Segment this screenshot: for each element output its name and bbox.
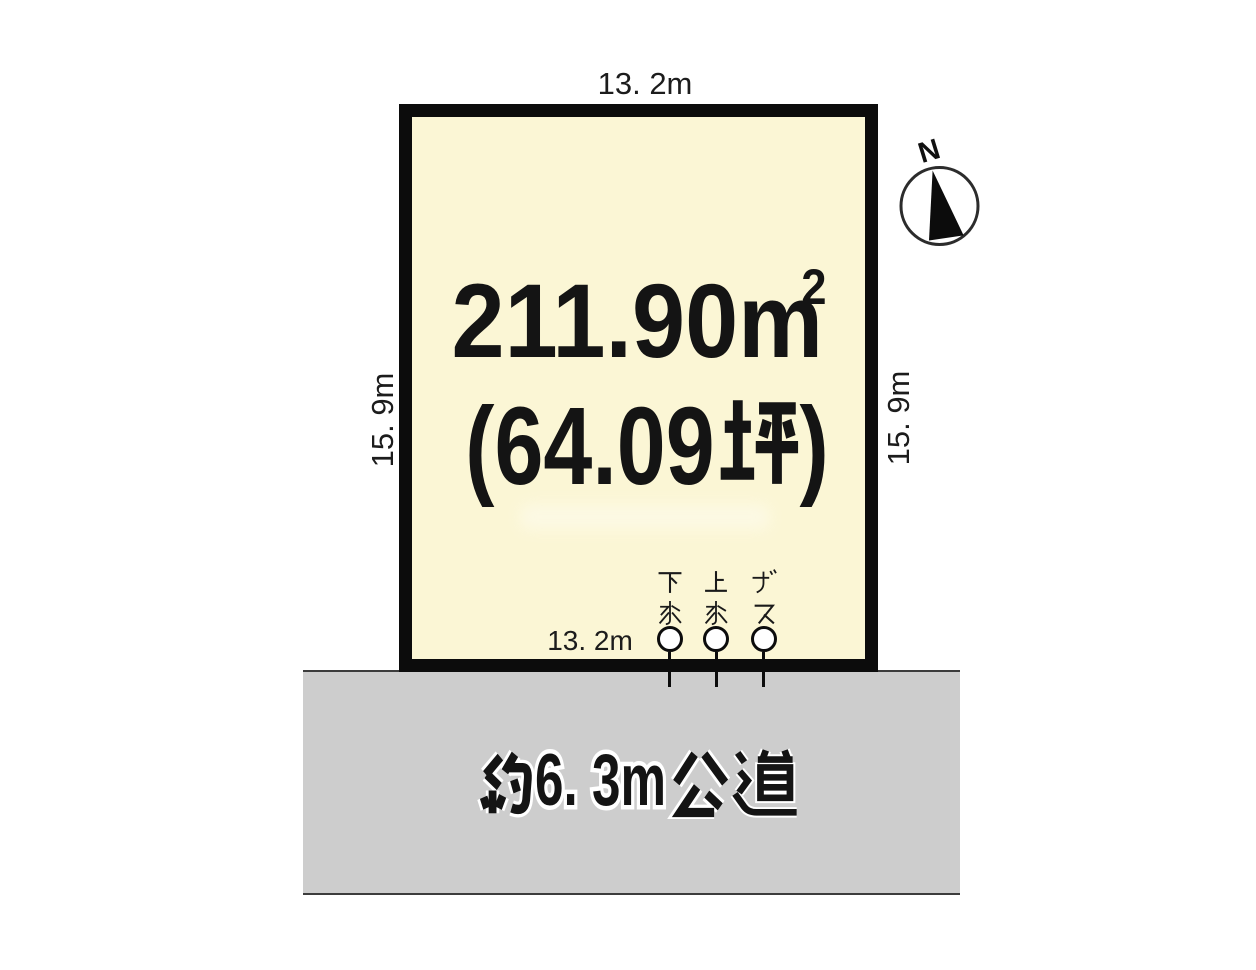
svg-text:N: N — [915, 133, 944, 170]
svg-text:6. 3m: 6. 3m — [535, 745, 666, 819]
